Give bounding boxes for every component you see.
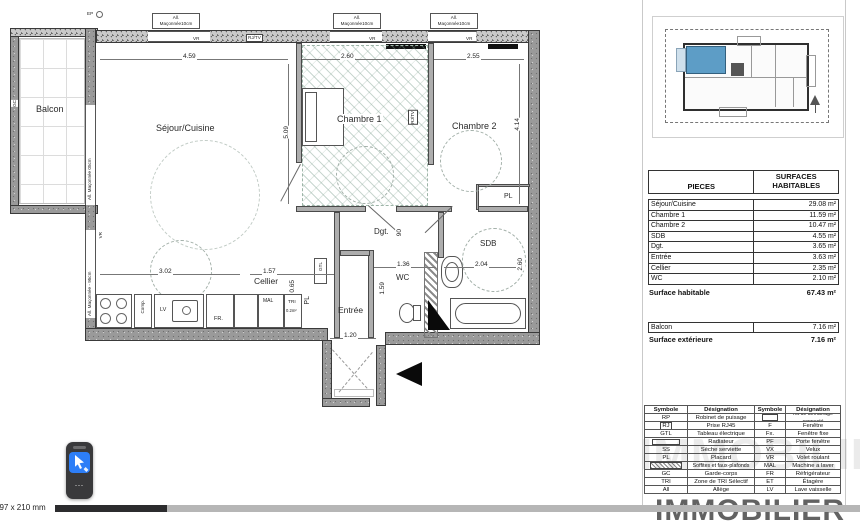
table-row: Séjour/Cuisine29.08 m² [648,199,839,211]
horizontal-scrollbar-track[interactable] [167,505,860,512]
room-label-wc: WC [396,273,409,282]
shutter-label: VR [192,36,200,41]
dimension-line [519,64,520,204]
wall-type-label: All. Maçonnée10cm [333,13,381,29]
table-row: Chambre 210.47 m² [648,220,839,232]
wall-type-line2: Maçonnée10cm [153,21,199,27]
dimension-line [302,59,428,60]
exterior-total-row: Surface extérieure 7.16 m² [648,335,839,344]
dim-label: 90 [395,229,404,236]
table-row: SDB4.55 m² [648,231,839,243]
wall-bottom-right [385,332,540,345]
dim-label: 1.57 [262,268,277,275]
wall-bottom-left [85,328,328,341]
counter-label: Comp. [139,300,146,314]
col-header-surfaces-line2: HABITABLES [754,182,838,191]
surface-table-header: PIECES SURFACES HABITABLES [648,170,839,194]
wall-interior [478,206,528,212]
dim-label: 1.20 [343,332,358,339]
interior-line [751,45,752,77]
door-swing-dashed [332,349,368,389]
interior-line [685,77,807,78]
row-value: 4.55 m² [754,232,838,242]
burner-icon [100,298,111,309]
row-name: Chambre 1 [649,211,754,221]
total-label: Surface habitable [648,288,753,297]
wall-type-line2: Maçonnée10cm [334,21,380,27]
row-value: 11.59 m² [754,211,838,221]
dim-label: 2.55 [466,53,481,60]
dim-label: 1.59 [378,282,387,295]
wall-type-label-vertical: All. Maçonnée - 95cm [86,234,93,316]
total-label: Surface extérieure [648,335,753,344]
room-label-chambre2: Chambre 2 [452,121,497,131]
vestibule-wall-right [376,345,386,406]
row-name: Balcon [649,323,754,333]
row-value: 3.63 m² [754,253,838,263]
room-label-pl: PL [504,193,513,200]
vestibule-wall-bottom [322,398,370,407]
room-label-entree: Entrée [338,305,363,315]
row-value: 2.35 m² [754,264,838,274]
row-value: 10.47 m² [754,221,838,231]
building-annex [737,36,761,46]
bathtub-inner [455,303,521,324]
sink-drain-icon [182,306,191,315]
dim-label: 1.36 [396,261,411,268]
guardrail-label: GC [11,100,18,107]
interior-line [793,77,794,107]
unit-balcony [676,48,686,72]
surface-table: PIECES SURFACES HABITABLES Séjour/Cuisin… [648,170,839,344]
row-value: 3.65 m² [754,242,838,252]
col-header-pieces: PIECES [649,171,754,193]
tri-area-label: 0.2m² [285,308,298,313]
building-annex [719,107,747,117]
wall-segment [10,28,19,214]
wall-interior [368,250,374,338]
building-footprint [683,43,809,111]
total-value: 7.16 m² [753,335,839,344]
balcony-floor [19,38,85,204]
table-row: Chambre 111.59 m² [648,210,839,222]
clearance-circle [336,146,394,204]
room-label-balcon: Balcon [36,104,64,114]
fridge [206,294,234,328]
legend-row: All Allège LV Lave vaisselle [645,485,845,494]
total-value: 67.43 m² [753,288,839,297]
wall-interior [296,206,366,212]
legend-designation: Lave vaisselle [785,485,841,494]
gtl-label: GTL [317,262,324,271]
room-label-cellier: Cellier [254,276,278,286]
row-name: Chambre 2 [649,221,754,231]
table-row: Dgt.3.65 m² [648,241,839,253]
widget-drag-handle[interactable] [73,446,86,449]
wall-type-label-vertical: All. Maçonnée 05cm [86,112,93,200]
page-size-label: 297 x 210 mm [0,503,46,512]
row-value: 2.10 m² [754,274,838,284]
door-triangle [428,300,450,330]
burner-icon [116,298,127,309]
dim-label: 2.04 [474,261,489,268]
legend-symbol: LV [754,485,786,494]
vestibule-wall-left [322,340,332,406]
burner-icon [100,313,111,324]
dim-label: 5.09 [282,126,291,139]
bed-pillow [305,92,317,142]
shutter-label: VR [97,232,104,238]
interior-line [775,45,776,107]
dishwasher-label: LV [159,307,167,313]
wall-interior [340,250,370,256]
room-label-sejour: Séjour/Cuisine [156,123,215,133]
floorplan-viewer-page: { "viewer": {"page_size_label": "297 x 2… [0,0,860,512]
row-name: Cellier [649,264,754,274]
dim-label: 2.60 [516,258,525,271]
stair-core [731,63,744,76]
ep-label: EP [86,11,94,16]
legend-designation: Allège [687,485,755,494]
shutter-label: VR [368,36,376,41]
cursor-tool-button[interactable] [69,452,90,473]
table-row: Cellier2.35 m² [648,263,839,275]
wall-right [528,30,540,345]
legend-symbol: All [644,485,688,494]
row-name: Entrée [649,253,754,263]
door-leaf [280,164,301,202]
room-label-sdb: SDB [480,239,496,248]
shutter-housing [488,44,518,49]
washing-machine-label: MAL [262,298,274,304]
building-annex [806,55,816,87]
row-name: SDB [649,232,754,242]
washbasin-inner [445,262,459,282]
dim-label: 3.02 [158,268,173,275]
wall-interior [428,43,434,165]
dim-label: 0.65 [288,280,297,293]
site-plan-key [652,16,844,138]
row-value: 29.08 m² [754,200,838,210]
dim-label: 4.59 [182,53,197,60]
burner-icon [116,313,127,324]
wall-type-line2: Maçonnée10cm [431,21,477,27]
table-row: Balcon7.16 m² [648,322,839,334]
wall-type-label: All. Maçonnée10cm [430,13,478,29]
row-name: Dgt. [649,242,754,252]
wall-interior [334,212,340,338]
floor-plan: GC Balcon EP All. Maçonnée10cm All. Maço… [0,0,645,505]
closet-label: PL [304,296,311,305]
north-arrow-icon [810,95,820,105]
col-header-surfaces: SURFACES HABITABLES [754,171,838,193]
dim-label: 4.14 [513,118,522,131]
table-row: WC2.10 m² [648,273,839,285]
more-options-button[interactable]: ⋯ [66,480,93,491]
clearance-circle [150,140,260,250]
cursor-arrow-icon [69,452,90,473]
row-name: WC [649,274,754,284]
door-cell [234,294,258,328]
dim-label: 2.60 [340,53,355,60]
table-row: Entrée3.63 m² [648,252,839,264]
shutter-label: VR [465,36,473,41]
toilet-tank [413,305,421,321]
floating-tool-widget[interactable]: ⋯ [66,442,93,499]
row-name: Séjour/Cuisine [649,200,754,210]
unit-highlight [686,46,726,74]
wall-type-label: All. Maçonnée10cm [152,13,200,29]
row-value: 7.16 m² [754,323,838,333]
clearance-circle [440,130,502,192]
tri-label: TRI [287,300,297,305]
fridge-label: FR. [213,316,224,322]
north-arrow-stem [815,105,816,113]
surface-total-row: Surface habitable 67.43 m² [648,288,839,297]
entrance-arrow-icon [396,362,422,386]
rj-tv-outlet-label: RJ/TV [246,34,263,42]
horizontal-scrollbar-thumb[interactable] [55,505,167,512]
room-label-dgt: Dgt. [374,227,389,236]
rj-tv-outlet-label: RJ/TV [408,110,418,125]
room-label-chambre1: Chambre 1 [336,114,383,124]
watermark-ghost: IMMOBILIER [640,430,860,480]
window-sejour [148,31,210,42]
ep-marker-icon [96,11,103,18]
